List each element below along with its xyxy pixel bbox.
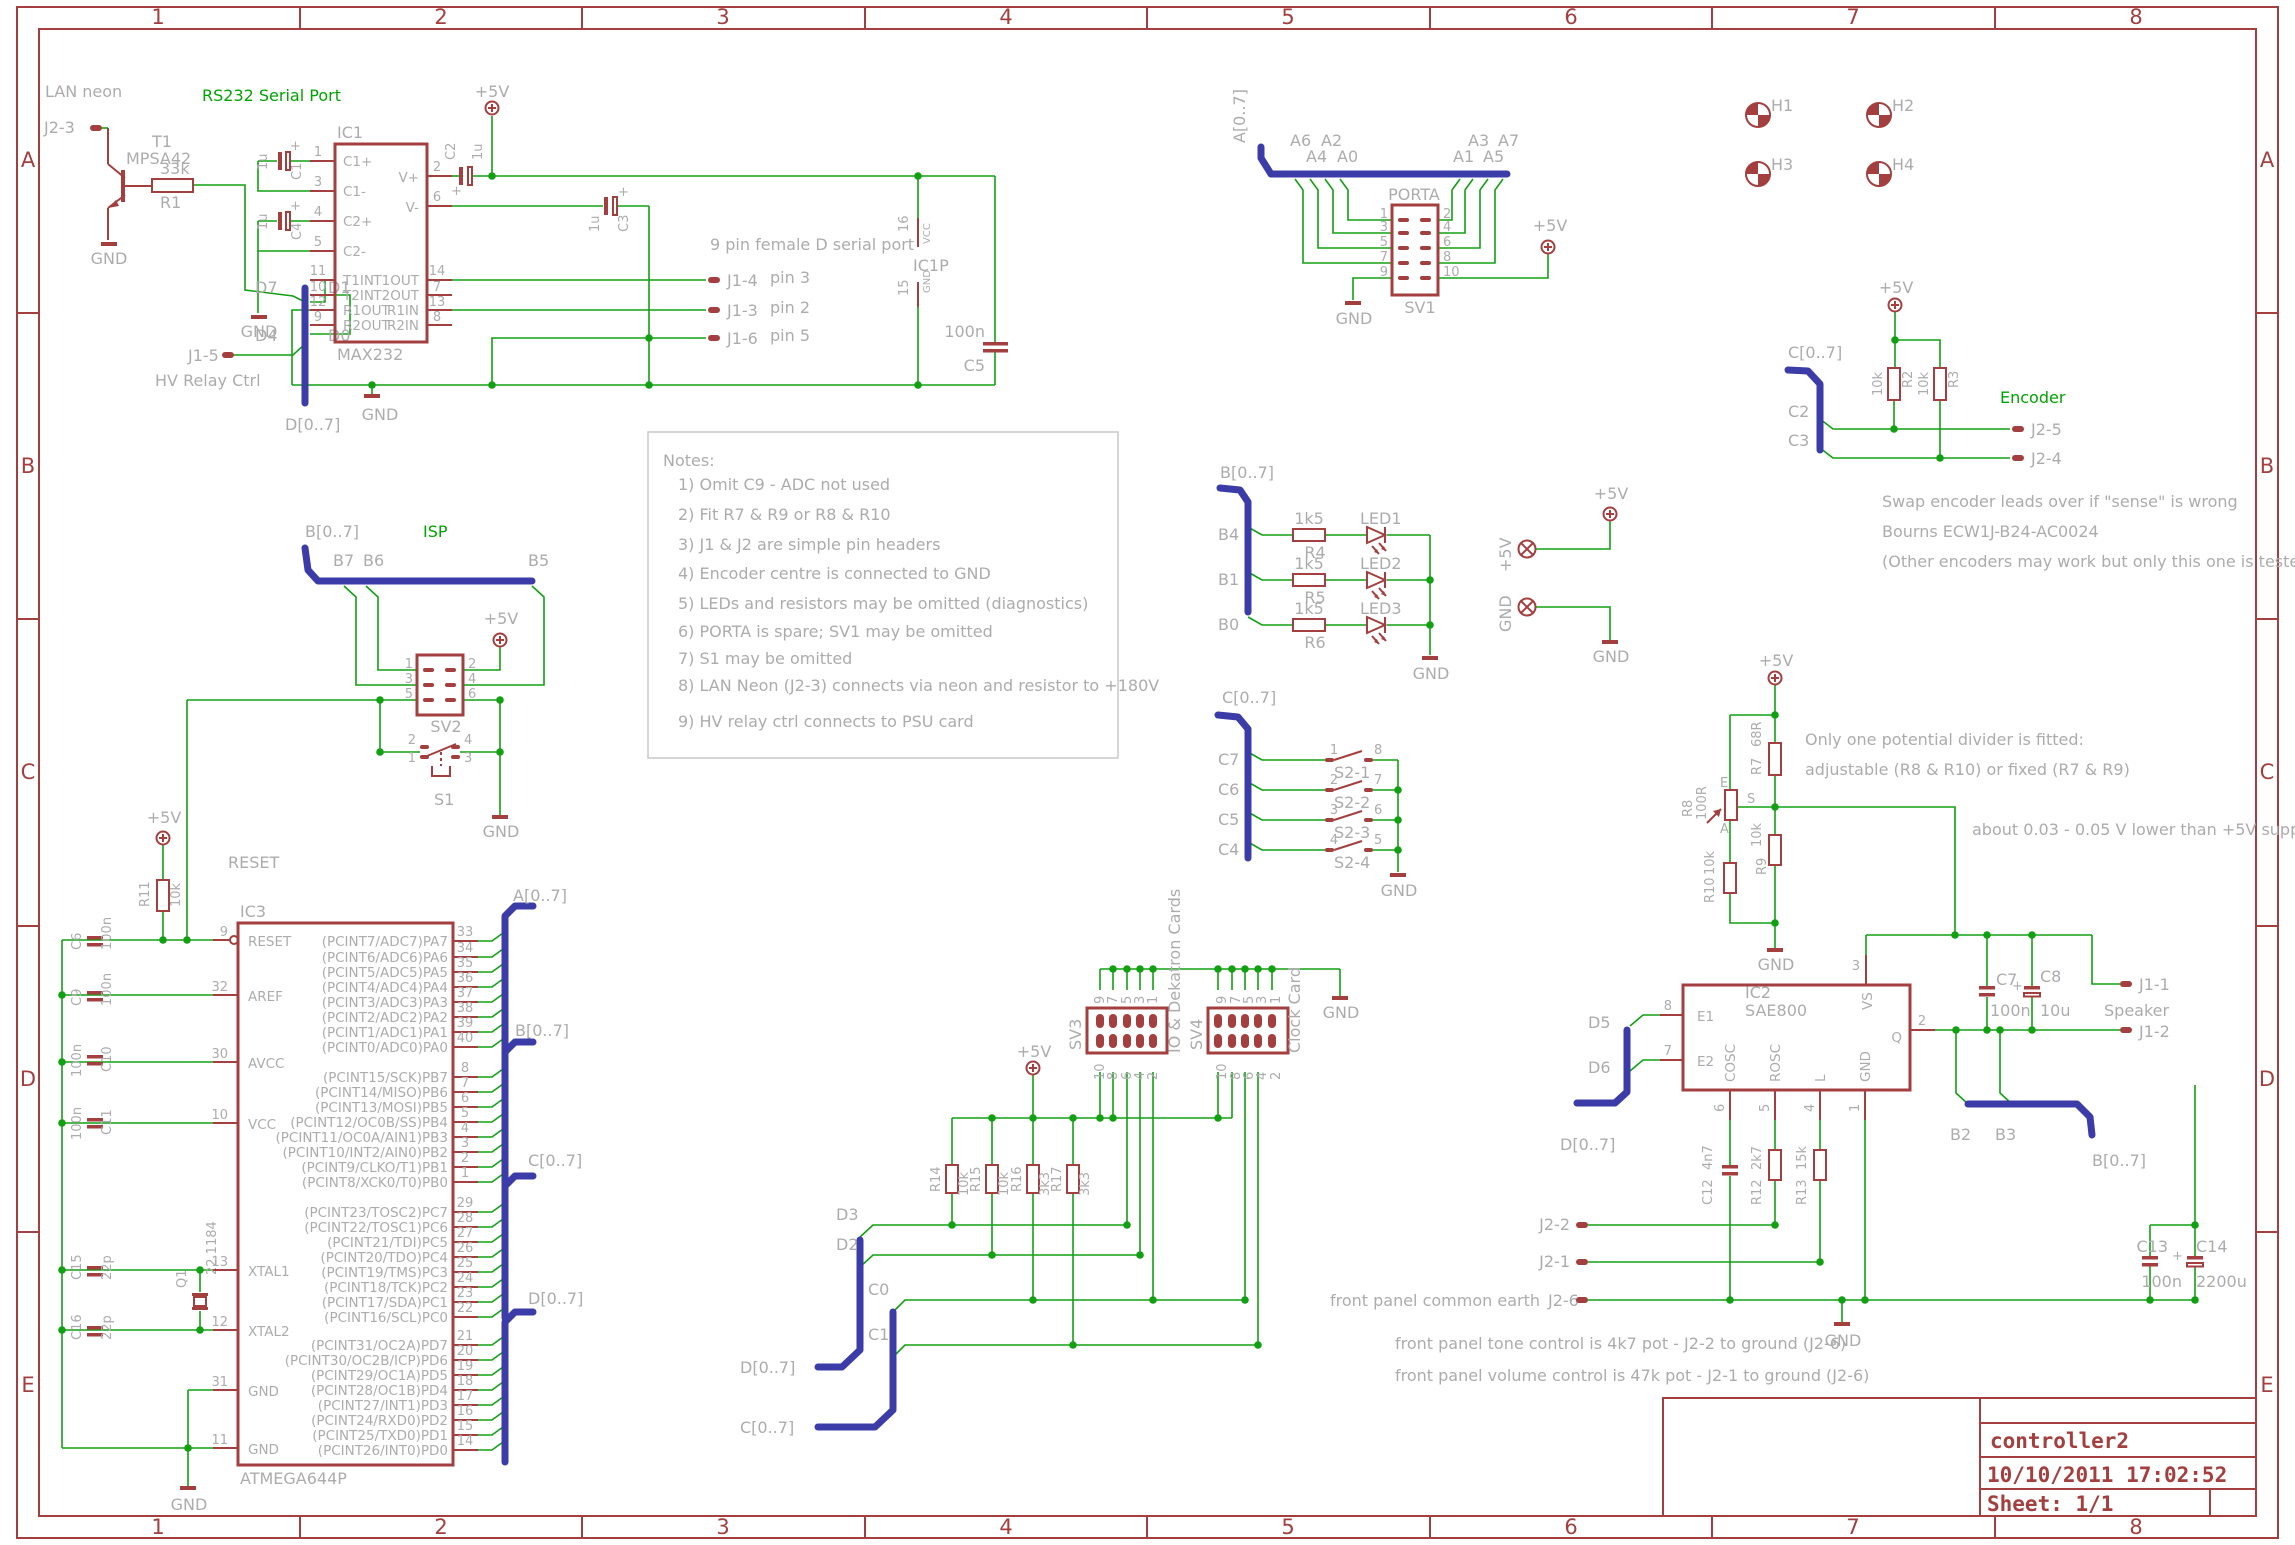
c15-value: 22p [100,1255,115,1280]
c4-plus: + [290,199,301,214]
net-c6: C6 [1218,780,1239,799]
resistor-r1 [152,179,193,192]
r11-value: 10k [169,882,184,907]
p5v-sv1-label: +5V [1533,216,1568,235]
note-7: 7) S1 may be omitted [678,649,852,668]
ic3-pd5-name: (PCINT29/OC1A)PD5 [311,1368,448,1384]
net-d2: D2 [836,1235,859,1254]
frame-row-c-left: C [21,760,36,784]
j1-3-pad [708,307,720,313]
sv3-pin1: 1 [1146,996,1161,1004]
ic3-avcc-name: AVCC [248,1056,284,1072]
ic3-pd0-num: 14 [457,1434,474,1449]
ic1-pin8-num: 8 [433,310,441,325]
ic3-pa2-num: 38 [457,1001,474,1016]
frame-col-5-bottom: 5 [1281,1515,1294,1539]
ic2-pin6-num: 6 [1713,1104,1728,1112]
ic1-pin3-name: C1- [343,184,366,200]
ic3-pd4-num: 18 [457,1374,474,1389]
c14-plus: + [2172,1249,2183,1264]
r17-value: 3k3 [1078,1172,1093,1196]
s2-4-pinl: 4 [1330,833,1338,848]
note-8: 8) LAN Neon (J2-3) connects via neon and… [678,676,1159,695]
sv4-pin9: 9 [1215,996,1230,1004]
ic3-pa0-num: 40 [457,1031,474,1046]
c9-value: 100n [100,973,115,1006]
net-b1: B1 [1218,570,1239,589]
net-c2-enc: C2 [1788,402,1809,421]
j1-2-label: J1-2 [2138,1022,2170,1041]
j1-1-pad [2120,981,2132,987]
gnd-symbol-s2: GND [1381,873,1418,900]
note-3: 3) J1 & J2 are simple pin headers [678,535,940,554]
s2-1-pinr: 8 [1374,743,1382,758]
h3-label: H3 [1771,155,1793,174]
c8-name: C8 [2040,967,2061,986]
bus-d-audio-label: D[0..7] [1560,1135,1615,1154]
r17-name: R17 [1050,1166,1065,1192]
resistor-r11: R11 10k [138,880,184,911]
sv2-pin1: 1 [405,657,413,672]
c5-name: C5 [964,356,985,375]
ic3-pin32-num: 32 [211,980,228,995]
c10-value: 100n [70,1044,85,1077]
sv1-pin3: 3 [1380,220,1388,235]
s1-pin4: 4 [464,733,472,748]
frame-col-8-bottom: 8 [2129,1515,2142,1539]
frame-col-6-top: 6 [1564,5,1577,29]
c6-name: C6 [70,933,85,950]
hole-h4: H4 [1867,155,1914,186]
frame-row-a-left: A [21,148,36,172]
ic3-pc3-name: (PCINT19/TMS)PC3 [321,1265,448,1281]
bus-b-leds [1220,488,1248,612]
sv1-pin4: 4 [1443,220,1451,235]
s2-1-name: S2-1 [1334,763,1370,782]
ic1p-name: IC1P [913,256,949,275]
j1-6-label: J1-6 [726,329,758,348]
net-b4: B4 [1218,525,1239,544]
r8-terminal-e: E [1720,776,1728,791]
s2-4-name: S2-4 [1334,853,1370,872]
net-c0: C0 [868,1280,889,1299]
resistor-r13: 15k R13 [1795,1145,1826,1205]
r8-terminal-a: A [1720,822,1729,837]
note-2: 2) Fit R7 & R9 or R8 & R10 [678,505,891,524]
bus-d-serial-label: D[0..7] [285,415,340,434]
ic3-pb7-name: (PCINT15/SCK)PB7 [323,1070,448,1086]
speaker-label: Speaker [2104,1001,2170,1020]
ic3-pa7-name: (PCINT7/ADC7)PA7 [322,934,448,950]
io-dekatron-label: IO & Dekatron Cards [1165,889,1184,1053]
q1-name: Q1 [175,1269,190,1288]
gnd-ic3-label: GND [171,1495,208,1514]
j2-5-label: J2-5 [2030,420,2062,439]
r8-value: 100R [1695,786,1710,820]
ic1-pin2-name: V+ [398,170,419,186]
p5v-symbol-divider: +5V [1759,651,1794,685]
j2-2-pad [1576,1222,1588,1228]
ic2-pin8-num: 8 [1664,999,1672,1014]
sv4-name: SV4 [1187,1019,1206,1050]
ic3-pc6-name: (PCINT22/TOSC1)PC6 [304,1220,448,1236]
s2-3-name: S2-3 [1334,823,1370,842]
sv2-pin5: 5 [405,687,413,702]
ic3-pa2-name: (PCINT2/ADC2)PA2 [322,1010,448,1026]
ic2-l-name: L [1813,1074,1829,1082]
ic3-pc3-num: 25 [457,1256,474,1271]
c4-value: 1u [256,213,271,230]
frame-col-1-top: 1 [151,5,164,29]
capacitor-c2: + C2 1u [444,143,486,199]
schematic-sheet: 1 2 3 4 5 6 7 8 1 2 3 4 5 6 7 8 A B C D … [0,0,2295,1545]
j2-4-label: J2-4 [2030,449,2062,468]
j2-6-label: J2-6 [1547,1291,1579,1310]
ic3-pd5-num: 19 [457,1359,474,1374]
ic3-gnd11-name: GND [248,1442,279,1458]
sv2-pin3: 3 [405,672,413,687]
gnd-symbol-s1: GND [483,815,520,841]
porta-header: PORTA [1388,185,1440,204]
c-loop-gnd-bar [251,315,267,319]
sv2-pin4: 4 [468,672,476,687]
c11-value: 100n [70,1107,85,1140]
ic3-xtal2-name: XTAL2 [248,1324,290,1340]
gnd-testpoint-label: GND [1593,647,1630,666]
ic1-pin12-num: 12 [310,295,327,310]
bus-b-isp-label: B[0..7] [305,522,359,541]
led1-label: LED1 [1360,509,1402,528]
ic3-pb5-name: (PCINT13/MOSI)PB5 [315,1100,448,1116]
p5v-testpoint-label: +5V [1594,484,1629,503]
ic3-pc0-num: 22 [457,1301,474,1316]
p5v-symbol-sv2: +5V [484,609,519,647]
ic3-pin10-num: 10 [211,1108,228,1123]
pin2-label: pin 2 [770,298,810,317]
ic2-rosc-name: ROSC [1768,1044,1784,1082]
ic1-pin5-name: C2- [343,244,366,260]
encoder-note-3: (Other encoders may work but only this o… [1882,552,2295,571]
ic3-pa5-name: (PCINT5/ADC5)PA5 [322,965,448,981]
ic3-pb6-name: (PCINT14/MISO)PB6 [315,1085,448,1101]
led-led1: LED1 [1360,509,1402,554]
frame-col-5-top: 5 [1281,5,1294,29]
ic1-pin9-name: R2OUT [343,318,390,334]
divider-note-1: Only one potential divider is fitted: [1805,730,2084,749]
led-led2: LED2 [1360,554,1402,599]
c3-plus: + [618,185,629,200]
pin3-label: pin 3 [770,268,810,287]
gnd-leds-label: GND [1413,664,1450,683]
rs232-header: RS232 Serial Port [202,86,341,105]
p5v-r11-label: +5V [147,808,182,827]
p5v-symbol-r11: +5V [147,808,182,845]
t1-gnd-label: GND [91,249,128,268]
c12-name: C12 [1701,1179,1716,1205]
frame-row-e-right: E [2260,1373,2273,1397]
ic1p-vcc-label: VCC [922,223,933,244]
ic2-pin7-num: 7 [1664,1044,1672,1059]
resistor-r14: R14 10k [929,1165,972,1196]
frame-row-e-left: E [21,1373,34,1397]
ic2-pin1-num: 1 [1848,1104,1863,1112]
r2-name: R2 [1901,371,1916,388]
ic1-pin11-name: T1IN [342,273,374,289]
frame-col-4-top: 4 [999,5,1012,29]
bus-c-mcu-label: C[0..7] [528,1151,582,1170]
capacitor-c4: + 1u C4 [256,199,305,240]
gnd-symbol-max232: GND [362,394,399,424]
r8-name: R8 [1681,800,1696,817]
j2-1-pad [1576,1259,1588,1265]
j1-5-label: J1-5 [187,346,219,365]
p5v-divider-label: +5V [1759,651,1794,670]
h1-label: H1 [1771,96,1793,115]
r13-name: R13 [1795,1179,1810,1205]
bus-c-cards-label: C[0..7] [740,1418,794,1437]
ic3-pc4-num: 26 [457,1241,474,1256]
p5v-symbol-max232: +5V [475,82,510,115]
sv4-pin1: 1 [1269,996,1284,1004]
notes-title: Notes: [663,451,715,470]
isp-header: ISP [423,522,448,541]
c2-value: 1u [471,143,486,160]
ic3-pc2-num: 24 [457,1271,474,1286]
encoder-note-1: Swap encoder leads over if "sense" is wr… [1882,492,2238,511]
ic1-pin3-num: 3 [314,175,322,190]
net-b6: B6 [363,551,384,570]
net-b7: B7 [333,551,354,570]
gnd-symbol-testpoint: GND [1593,640,1630,666]
ic3-pd3-name: (PCINT27/INT1)PD3 [318,1398,448,1414]
gnd-symbol-ic3: GND [171,1486,208,1514]
project-name: controller2 [1990,1429,2129,1453]
r14-name: R14 [929,1166,944,1192]
ic3-pb7-num: 8 [461,1061,469,1076]
j1-3-label: J1-3 [726,301,758,320]
s2-3-pinr: 6 [1374,803,1382,818]
c2-name: C2 [444,143,459,160]
ic1-pin14-num: 14 [429,264,446,279]
bus-d-mcu [505,1312,533,1462]
ic1-pin4-name: C2+ [343,214,372,230]
p5v-symbol-sv1: +5V [1533,216,1568,254]
capacitor-c9: C9 100n [70,973,115,1006]
p5v-sv34-label: +5V [1017,1042,1052,1061]
ic3-aref-name: AREF [248,989,283,1005]
schematic-canvas: 1 2 3 4 5 6 7 8 1 2 3 4 5 6 7 8 A B C D … [0,0,2295,1545]
sv1-pin8: 8 [1443,250,1451,265]
ic1-pin10-num: 10 [310,280,327,295]
sheet-number: Sheet: 1/1 [1987,1492,2113,1516]
sv4-pin3: 3 [1255,996,1270,1004]
ic3-pin12-num: 12 [211,1315,228,1330]
net-b2: B2 [1950,1125,1971,1144]
c16-name: C16 [70,1314,85,1340]
j2-2-label: J2-2 [1538,1215,1570,1234]
sv1-pin10: 10 [1443,265,1460,280]
s2-2-name: S2-2 [1334,793,1370,812]
ic3-pb2-name: (PCINT10/INT2/AIN0)PB2 [282,1145,448,1161]
transistor-t1 [101,128,152,246]
ic2-vs-name: VS [1860,992,1876,1010]
c4-name: C4 [290,223,305,240]
ic3-pb2-num: 3 [461,1136,469,1151]
r16-name: R16 [1010,1166,1025,1192]
ic3-pa3-name: (PCINT3/ADC3)PA3 [322,995,448,1011]
r8-terminal-s: S [1747,792,1755,807]
led2-label: LED2 [1360,554,1402,573]
bus-b-audio-label: B[0..7] [2092,1151,2146,1170]
ic1-pin1-name: C1+ [343,154,372,170]
ic3-pd1-name: (PCINT25/TXD0)PD1 [312,1428,448,1444]
p5v-encoder-label: +5V [1879,278,1914,297]
s1-pin2: 2 [408,733,416,748]
connector-sv1 [1392,205,1438,295]
capacitor-c3: + 1u C3 [588,185,632,232]
ic3-pb1-name: (PCINT9/CLKO/T1)PB1 [301,1160,448,1176]
gnd-s2-label: GND [1381,881,1418,900]
ic3-pc5-name: (PCINT21/TDI)PC5 [327,1235,448,1251]
ic3-vcc-name: VCC [248,1117,276,1133]
p5v-symbol-testpoint: +5V [1594,484,1629,521]
lan-neon-label: LAN neon [45,82,122,101]
frame-row-b-right: B [2260,454,2274,478]
sv3-name: SV3 [1066,1019,1085,1050]
s2-2-pinr: 7 [1374,773,1382,788]
testpoint-p5v: +5V [1496,537,1536,572]
ic3-pd1-num: 15 [457,1419,474,1434]
net-c1: C1 [868,1325,889,1344]
ic3-gnd31-name: GND [248,1384,279,1400]
net-b0: B0 [1218,615,1239,634]
net-d7: D7 [255,278,278,297]
ic3-pc5-num: 27 [457,1226,474,1241]
j1-5-pad [222,352,234,358]
capacitor-c12: 4n7 C12 [1701,1145,1738,1205]
r1-name: R1 [160,193,181,212]
ic1-pin10-name: T2IN [342,288,374,304]
connector-sv3: SV3 IO & Dekatron Cards 9 7 5 3 1 10 8 6… [1066,889,1184,1080]
net-c3-enc: C3 [1788,431,1809,450]
date-stamp: 10/10/2011 17:02:52 [1987,1463,2227,1487]
ic3-value: ATMEGA644P [240,1469,347,1488]
ic3-pd0-name: (PCINT26/INT0)PD0 [318,1443,448,1459]
ic3-pa0-name: (PCINT0/ADC0)PA0 [322,1040,448,1056]
ic1-pin4-num: 4 [314,205,322,220]
capacitor-c14: + C14 2200u [2172,1237,2247,1291]
c14-value: 2200u [2196,1272,2247,1291]
note-6: 6) PORTA is spare; SV1 may be omitted [678,622,993,641]
capacitor-c16: C16 22p [70,1314,115,1340]
c9-name: C9 [70,989,85,1006]
ic1-pin12-name: R1OUT [343,303,390,319]
r15-name: R15 [969,1166,984,1192]
ic3-pb3-name: (PCINT11/OC0A/AIN1)PB3 [276,1130,448,1146]
r4-value: 1k5 [1294,509,1324,528]
frame-col-1-bottom: 1 [151,1515,164,1539]
ic3-name: IC3 [240,902,266,921]
c8-value: 10u [2040,1001,2071,1020]
pin5-label: pin 5 [770,326,810,345]
resistor-r3: 10k R3 [1917,368,1962,400]
c7-value: 100n [1990,1001,2031,1020]
ic3-pa1-name: (PCINT1/ADC1)PA1 [322,1025,448,1041]
sv3-pin2: 2 [1146,1072,1161,1080]
ic3-pin9-num: 9 [220,925,228,940]
gnd-symbol-leds: GND [1413,656,1450,683]
ic3-pd6-num: 20 [457,1344,474,1359]
sv1-pin6: 6 [1443,235,1451,250]
ic3-pc2-name: (PCINT18/TCK)PC2 [324,1280,448,1296]
c12-value: 4n7 [1701,1145,1716,1170]
ic3-pd6-name: (PCINT30/OC2B/ICP)PD6 [285,1353,448,1369]
ic3-pb5-num: 6 [461,1091,469,1106]
j2-3-pad [90,125,102,131]
p5v-max232-label: +5V [475,82,510,101]
ic3-pa6-name: (PCINT6/ADC6)PA6 [322,950,448,966]
fp-volume-note: front panel volume control is 47k pot - … [1395,1366,1869,1385]
hv-relay-label: HV Relay Ctrl [155,371,261,390]
ic1-pin6-num: 6 [433,190,441,205]
title-block: controller2 10/10/2011 17:02:52 Sheet: 1… [1663,1398,2256,1516]
resistor-r16: R16 3k3 [1010,1165,1053,1196]
sv4-pin2: 2 [1269,1072,1284,1080]
divider-note-3: about 0.03 - 0.05 V lower than +5V suppl… [1972,820,2295,839]
r3-name: R3 [1947,371,1962,388]
s2-4-pinr: 5 [1374,833,1382,848]
ic3-pc7-num: 29 [457,1196,474,1211]
hole-h1: H1 [1746,96,1793,127]
h2-label: H2 [1892,96,1914,115]
sv2-name: SV2 [430,717,461,736]
c3-value: 1u [588,215,603,232]
sv4-pin4: 4 [1255,1072,1270,1080]
r9-name: R9 [1755,858,1770,875]
s1-pin3: 3 [464,751,472,766]
j1-4-label: J1-4 [726,271,758,290]
gnd-symbol-sv1: GND [1336,301,1373,328]
ic3-pc6-num: 28 [457,1211,474,1226]
sv3-pin7: 7 [1106,996,1121,1004]
ic3-pd7-num: 21 [457,1329,474,1344]
c2-plus: + [451,184,462,199]
ic3-pc7-name: (PCINT23/TOSC2)PC7 [304,1205,448,1221]
ic3-pb4-name: (PCINT12/OC0B/SS)PB4 [290,1115,448,1131]
r9-value: 10k [1750,822,1765,847]
ic3-reset-name: RESET [248,934,292,950]
ic3-pin13-num: 13 [211,1255,228,1270]
divider-note-2: adjustable (R8 & R10) or fixed (R7 & R9) [1805,760,2130,779]
net-b3: B3 [1995,1125,2016,1144]
r12-value: 2k7 [1750,1146,1765,1170]
note-5: 5) LEDs and resistors may be omitted (di… [678,594,1088,613]
ic1-pin6-name: V- [406,200,419,216]
sv2-pin6: 6 [468,687,476,702]
gnd-symbol-divider: GND [1758,948,1795,974]
r13-value: 15k [1795,1145,1810,1170]
r7-value: 68R [1750,721,1765,747]
j1-2-pad [2120,1027,2132,1033]
frame-row-c-right: C [2260,760,2275,784]
frame-col-4-bottom: 4 [999,1515,1012,1539]
ic3-pb6-num: 7 [461,1076,469,1091]
net-d3: D3 [836,1205,859,1224]
resistor-r6: 1k5 R6 [1293,599,1326,652]
hole-h2: H2 [1867,96,1914,127]
note-1: 1) Omit C9 - ADC not used [678,475,890,494]
j2-4-pad [2012,455,2024,461]
